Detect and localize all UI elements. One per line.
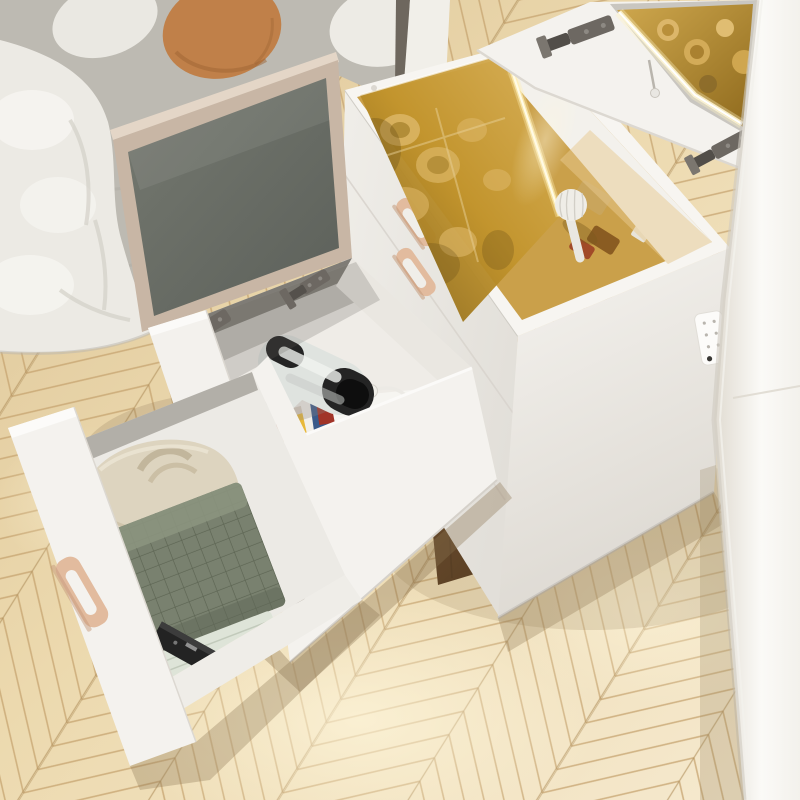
lid-support-foot (651, 89, 660, 98)
rim-hinge-screw (371, 85, 377, 91)
scene (0, 0, 800, 800)
bedroom-vanity-photo (0, 0, 800, 800)
